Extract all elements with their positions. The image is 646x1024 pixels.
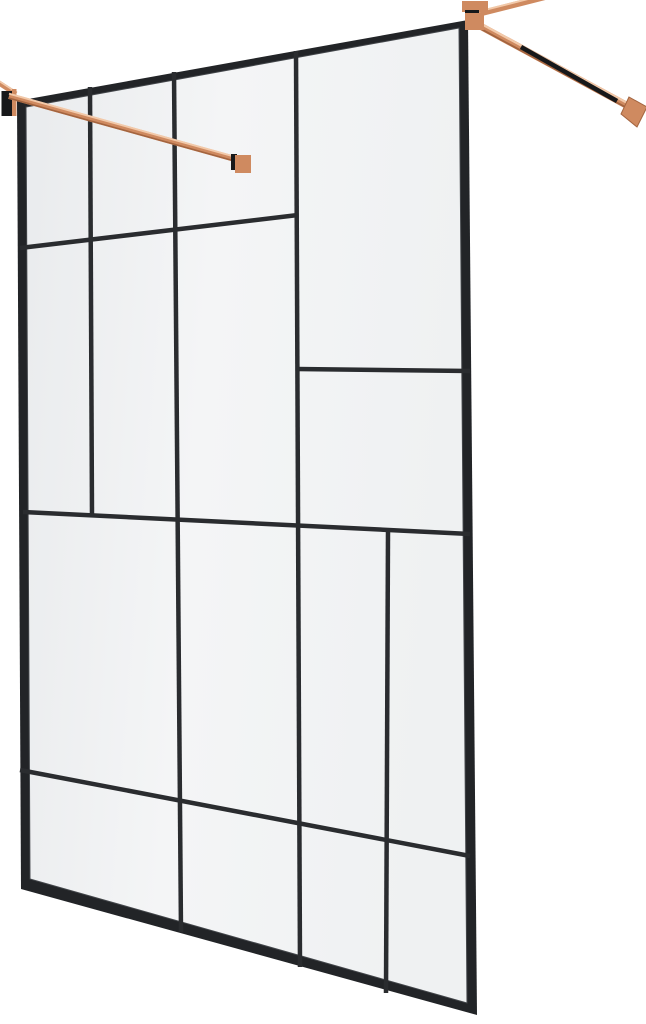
shower-scene (0, 0, 646, 1024)
corner-clamp-right (465, 13, 484, 30)
walk-in-shower-screen-product-photo (0, 0, 646, 1024)
grid-mullion-v1 (90, 87, 92, 516)
support-arm-right-reflection (521, 47, 617, 101)
arm-clamp-left (235, 155, 251, 173)
grid-mullion-h2 (297, 369, 470, 371)
wall-bracket-left-trim (12, 89, 17, 116)
grid-mullion-v4 (386, 531, 388, 993)
